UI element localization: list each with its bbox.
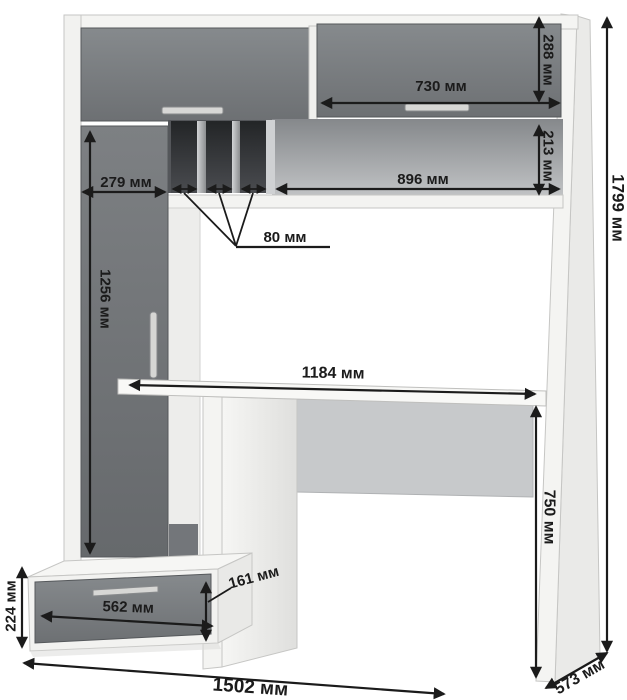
dim-label: 1502 мм [212, 674, 289, 700]
dim-label: 279 мм [100, 174, 151, 191]
pigeonhole-slot [206, 121, 232, 193]
pigeonhole-slot [240, 121, 266, 193]
dim-overall-width: 1502 мм [24, 663, 444, 700]
desk-back-panel [297, 399, 533, 497]
top-left-door-handle [162, 107, 223, 114]
left-side-panel [64, 15, 81, 562]
pigeonhole-slot [171, 121, 197, 193]
dim-label: 288 мм [540, 34, 557, 85]
dim-label: 224 мм [3, 580, 20, 631]
dim-label: 562 мм [102, 598, 154, 617]
top-right-door-handle [405, 104, 469, 111]
pigeonhole-compartment [168, 120, 275, 194]
pigeonhole-divider [232, 121, 240, 193]
dim-label: 213 мм [540, 130, 557, 181]
door-divider-panel [309, 26, 317, 121]
dim-label: 80 мм [263, 229, 306, 246]
pigeonhole-divider [197, 121, 206, 193]
dim-pedestal-height: 224 мм [3, 568, 23, 647]
dim-overall-height: 1799 мм [607, 18, 627, 651]
dim-label: 730 мм [415, 78, 466, 95]
shelf-board [166, 195, 563, 208]
diagram-canvas: 288 мм 730 мм 213 мм 896 мм 80 мм 279 [0, 0, 627, 700]
dim-label: 1184 мм [302, 364, 365, 382]
tall-cabinet-door-handle [150, 312, 157, 378]
dim-label: 1799 мм [609, 174, 627, 242]
cabinet-bottom-niche [169, 524, 198, 560]
dim-label: 1256 мм [97, 269, 114, 329]
dim-label: 750 мм [541, 490, 558, 545]
furniture-dimension-diagram: 288 мм 730 мм 213 мм 896 мм 80 мм 279 [0, 0, 627, 700]
dim-label: 896 мм [397, 171, 448, 188]
pigeonhole-right-wall [266, 120, 275, 194]
